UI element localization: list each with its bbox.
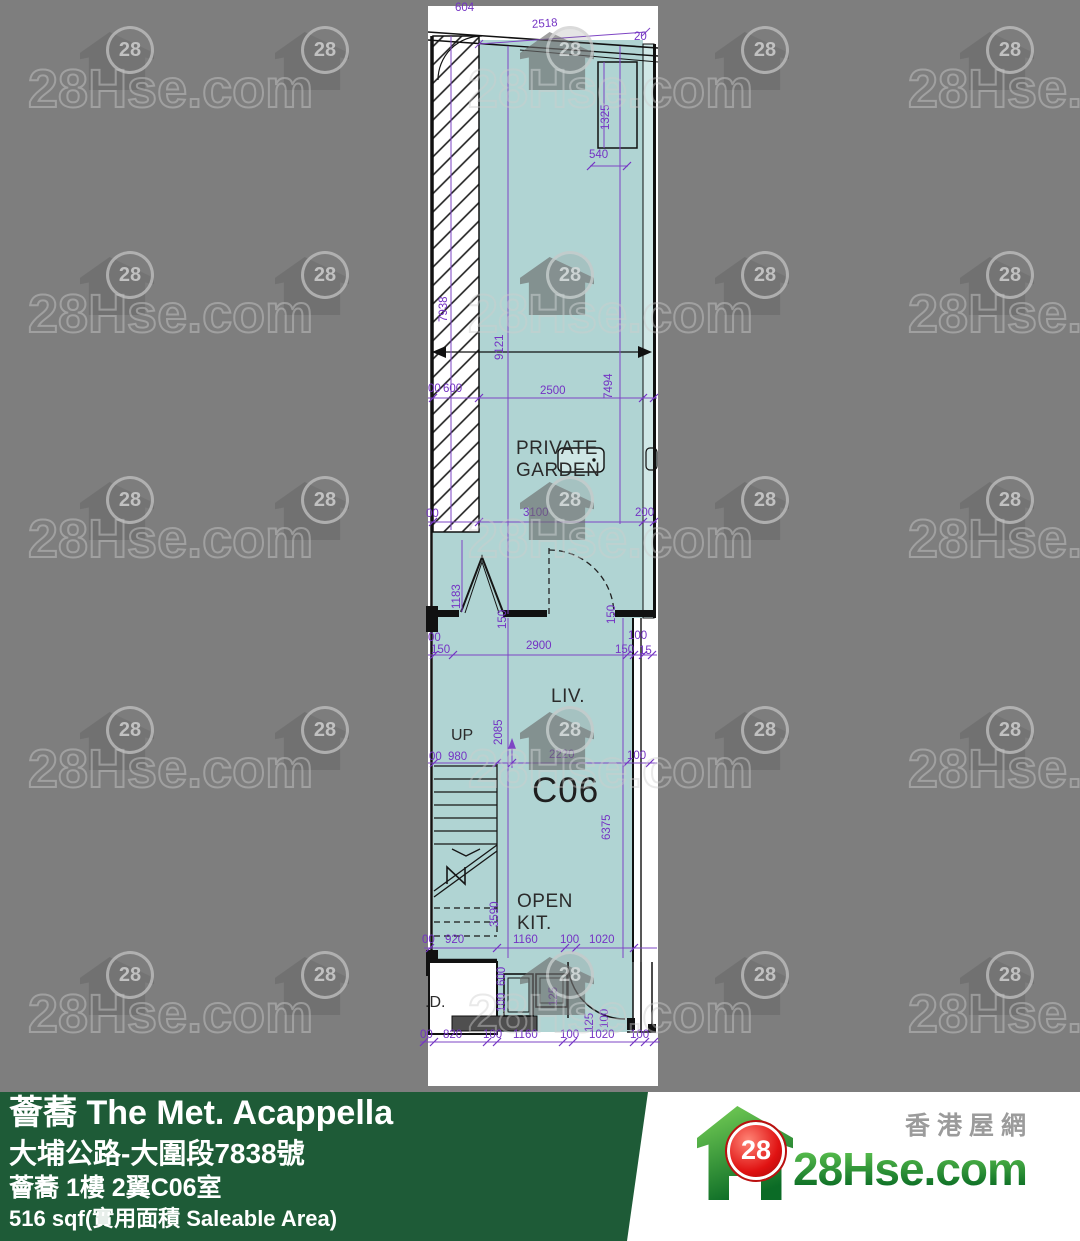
hatched-wall [433,36,479,532]
property-unit: 薈蕎 1樓 2翼C06室 [9,1173,222,1203]
kitchen-counter [452,1016,537,1031]
logo-tagline: 香港屋網 [905,1106,1033,1142]
property-area: 516 sqf(實用面積 Saleable Area) [9,1205,337,1233]
logo-brand-text: 28Hse.com [793,1142,1027,1196]
footer-bar: 薈蕎 The Met. Acappella 大埔公路-大圍段7838號 薈蕎 1… [0,1092,1080,1241]
property-address: 大埔公路-大圍段7838號 [9,1137,305,1171]
property-info-banner: 薈蕎 The Met. Acappella 大埔公路-大圍段7838號 薈蕎 1… [0,1092,660,1241]
floor-plan-drawing [0,0,1080,1241]
logo-badge-28: 28 [727,1122,785,1180]
property-title: 薈蕎 The Met. Acappella [9,1092,393,1134]
listing-floorplan-image: { "watermark": { "text": "28Hse.com", "b… [0,0,1080,1241]
